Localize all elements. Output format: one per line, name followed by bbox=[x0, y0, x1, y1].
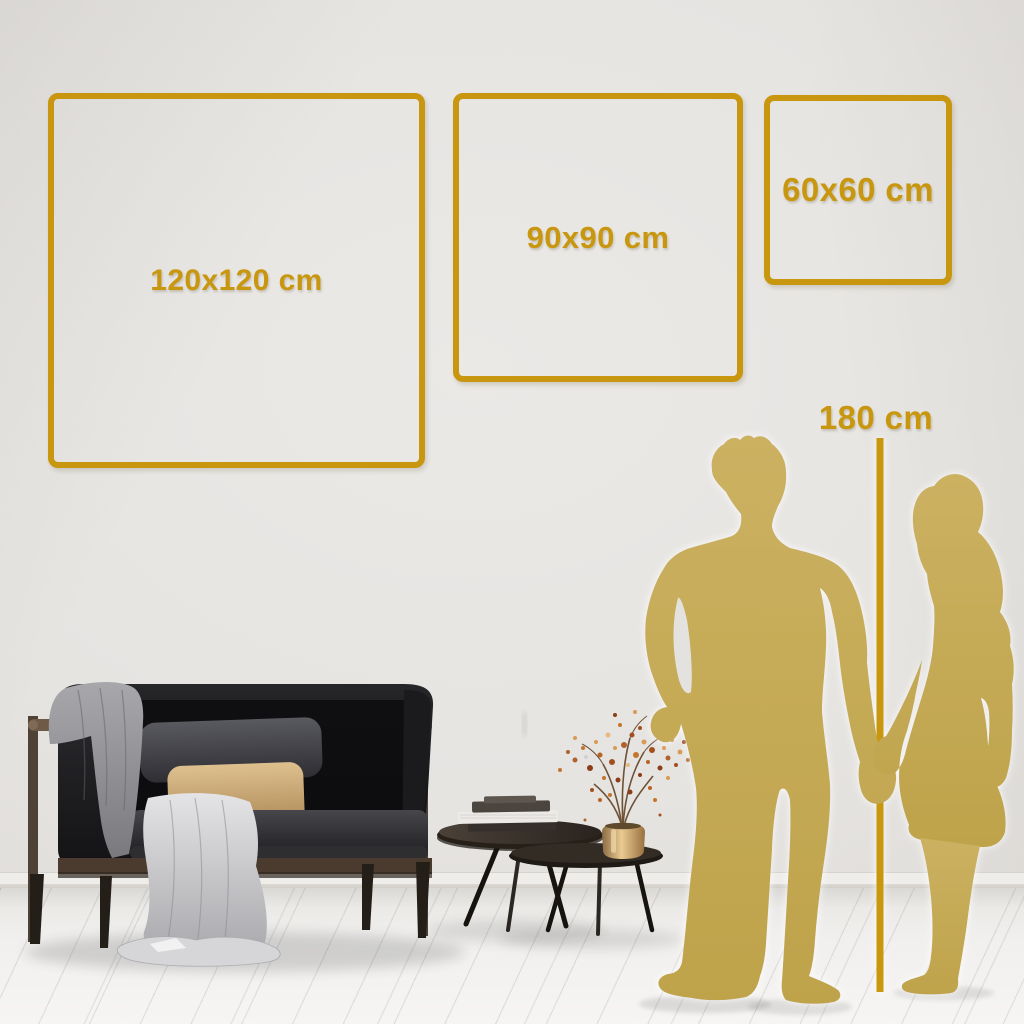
sofa bbox=[28, 682, 433, 966]
brass-vase bbox=[602, 823, 645, 859]
couple-silhouettes bbox=[645, 436, 1014, 1004]
size-frame-90: 90x90 cm bbox=[453, 93, 743, 382]
woman-leg bbox=[902, 838, 980, 994]
man-silhouette bbox=[645, 436, 896, 1004]
size-label-120: 120x120 cm bbox=[150, 264, 323, 298]
size-frame-60: 60x60 cm bbox=[764, 95, 952, 285]
height-marker-label: 180 cm bbox=[819, 399, 933, 437]
woman-silhouette bbox=[873, 474, 1014, 847]
coffee-tables bbox=[437, 710, 690, 934]
light-throw bbox=[143, 793, 267, 957]
wall-art-size-guide: 120x120 cm 90x90 cm 60x60 cm 180 cm bbox=[0, 0, 1024, 1024]
height-measure-line bbox=[877, 438, 884, 992]
book-stack bbox=[458, 796, 558, 832]
size-label-60: 60x60 cm bbox=[782, 171, 934, 209]
size-frame-120: 120x120 cm bbox=[48, 93, 425, 468]
wall-marks bbox=[523, 712, 588, 759]
throw-pool bbox=[117, 937, 280, 967]
size-label-90: 90x90 cm bbox=[527, 220, 670, 256]
